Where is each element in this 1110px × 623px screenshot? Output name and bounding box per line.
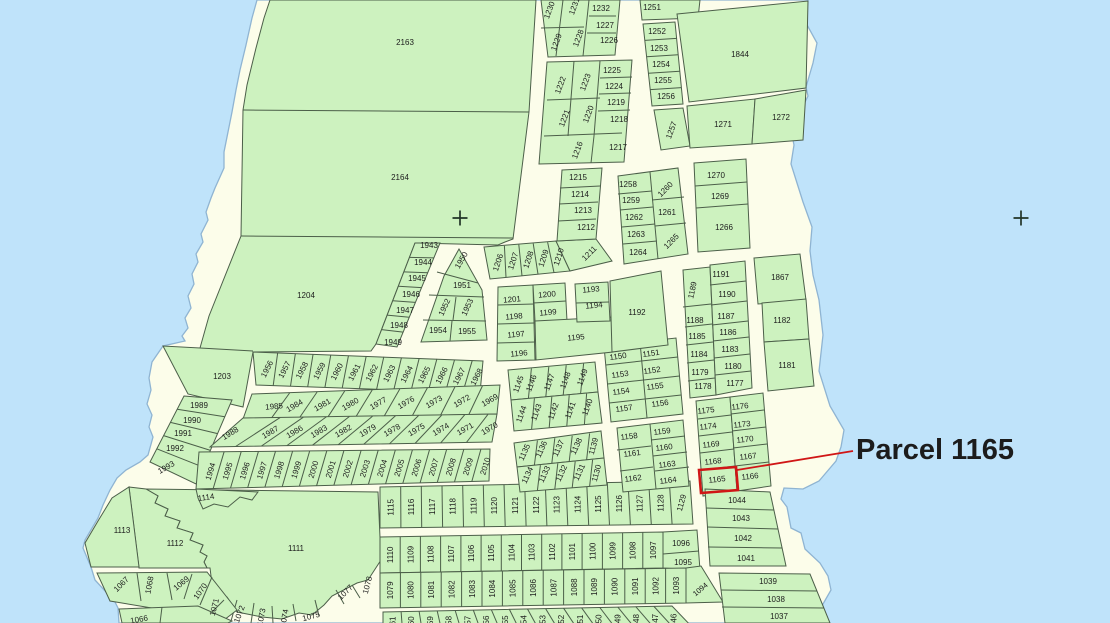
svg-text:1108: 1108 (427, 545, 436, 563)
svg-text:1256: 1256 (657, 92, 675, 101)
svg-text:1051: 1051 (576, 614, 585, 623)
svg-text:1101: 1101 (568, 542, 577, 560)
svg-text:1091: 1091 (631, 577, 640, 595)
svg-text:1109: 1109 (406, 545, 415, 563)
svg-text:1990: 1990 (183, 416, 201, 425)
svg-text:1111: 1111 (288, 544, 305, 553)
svg-text:1124: 1124 (573, 495, 582, 513)
svg-text:1041: 1041 (737, 554, 755, 563)
svg-text:1038: 1038 (767, 595, 785, 604)
svg-text:1949: 1949 (384, 338, 402, 347)
svg-text:1089: 1089 (590, 578, 599, 596)
svg-text:1170: 1170 (736, 434, 755, 445)
svg-text:1262: 1262 (625, 213, 643, 222)
svg-text:2164: 2164 (391, 173, 409, 182)
svg-text:1951: 1951 (453, 281, 471, 290)
svg-text:1123: 1123 (553, 496, 562, 514)
svg-text:1196: 1196 (510, 348, 528, 359)
svg-text:1048: 1048 (632, 614, 641, 623)
svg-text:1270: 1270 (707, 171, 725, 180)
svg-text:1232: 1232 (592, 4, 610, 13)
svg-text:1099: 1099 (608, 541, 617, 559)
svg-text:1185: 1185 (688, 332, 706, 341)
svg-text:1178: 1178 (694, 382, 712, 391)
svg-text:1193: 1193 (582, 284, 600, 295)
svg-text:1259: 1259 (622, 196, 640, 205)
svg-text:1052: 1052 (557, 614, 566, 623)
svg-text:1165: 1165 (708, 474, 727, 485)
svg-text:1947: 1947 (396, 306, 414, 315)
svg-text:1095: 1095 (674, 558, 692, 567)
svg-text:1190: 1190 (718, 290, 736, 299)
svg-text:1266: 1266 (715, 223, 733, 232)
svg-text:1100: 1100 (588, 542, 597, 560)
svg-text:1056: 1056 (482, 615, 491, 623)
svg-text:1102: 1102 (548, 543, 557, 561)
svg-text:1049: 1049 (613, 614, 622, 623)
svg-text:1054: 1054 (520, 615, 529, 623)
svg-text:1090: 1090 (611, 577, 620, 595)
svg-text:1086: 1086 (529, 579, 538, 597)
svg-text:1191: 1191 (712, 270, 730, 279)
svg-text:1227: 1227 (596, 21, 614, 30)
svg-text:1173: 1173 (733, 419, 752, 430)
svg-text:1166: 1166 (741, 471, 760, 482)
svg-text:1188: 1188 (686, 316, 704, 325)
svg-text:1096: 1096 (672, 539, 690, 548)
svg-text:1103: 1103 (528, 543, 537, 561)
svg-text:1264: 1264 (629, 248, 647, 257)
svg-text:1254: 1254 (652, 60, 670, 69)
svg-text:1224: 1224 (605, 82, 623, 91)
svg-text:1271: 1271 (714, 120, 732, 129)
svg-text:1047: 1047 (651, 613, 660, 623)
svg-text:1125: 1125 (594, 495, 603, 513)
svg-text:1200: 1200 (538, 289, 557, 300)
svg-text:1182: 1182 (773, 316, 791, 325)
svg-text:1867: 1867 (771, 273, 789, 282)
svg-text:1175: 1175 (697, 405, 716, 416)
svg-text:1098: 1098 (629, 541, 638, 559)
svg-text:1057: 1057 (463, 615, 472, 623)
svg-text:1194: 1194 (585, 300, 603, 311)
svg-text:1113: 1113 (114, 526, 131, 535)
svg-text:1181: 1181 (778, 361, 796, 370)
svg-text:1272: 1272 (772, 113, 790, 122)
svg-text:1120: 1120 (490, 497, 499, 515)
svg-text:1180: 1180 (724, 362, 742, 371)
svg-text:1263: 1263 (627, 230, 645, 239)
svg-text:1060: 1060 (407, 616, 416, 623)
svg-text:1044: 1044 (728, 496, 746, 505)
svg-text:1092: 1092 (651, 577, 660, 595)
svg-text:1948: 1948 (390, 321, 408, 330)
svg-text:1217: 1217 (609, 143, 627, 152)
svg-text:1269: 1269 (711, 192, 729, 201)
svg-text:1204: 1204 (297, 291, 315, 300)
svg-text:1261: 1261 (658, 208, 676, 217)
svg-text:2163: 2163 (396, 38, 414, 47)
svg-text:1225: 1225 (603, 66, 621, 75)
svg-text:1989: 1989 (190, 401, 208, 410)
svg-text:1195: 1195 (567, 332, 585, 343)
svg-text:1081: 1081 (427, 580, 436, 598)
svg-text:1080: 1080 (407, 581, 416, 599)
svg-text:1214: 1214 (571, 190, 589, 199)
svg-text:1177: 1177 (726, 379, 744, 388)
svg-text:1226: 1226 (600, 36, 618, 45)
svg-text:1955: 1955 (458, 327, 476, 336)
svg-text:1083: 1083 (468, 580, 477, 598)
svg-text:1954: 1954 (429, 326, 447, 335)
svg-text:1258: 1258 (619, 180, 637, 189)
svg-text:1198: 1198 (505, 311, 523, 322)
svg-text:1213: 1213 (574, 206, 592, 215)
svg-text:1128: 1128 (656, 494, 665, 512)
svg-text:1088: 1088 (570, 578, 579, 596)
svg-text:1179: 1179 (691, 368, 709, 377)
svg-text:1112: 1112 (167, 539, 184, 548)
svg-text:1119: 1119 (469, 497, 478, 514)
svg-text:1168: 1168 (704, 456, 723, 467)
svg-text:1105: 1105 (487, 544, 496, 562)
svg-text:1118: 1118 (449, 497, 458, 514)
svg-text:1192: 1192 (628, 308, 646, 317)
svg-text:1253: 1253 (650, 44, 668, 53)
svg-text:1046: 1046 (670, 613, 679, 623)
svg-text:1058: 1058 (445, 615, 454, 623)
svg-text:1087: 1087 (549, 578, 558, 596)
svg-text:1174: 1174 (699, 421, 718, 432)
svg-text:1115: 1115 (386, 498, 395, 515)
svg-text:1053: 1053 (538, 614, 547, 623)
svg-text:1167: 1167 (739, 451, 758, 462)
svg-text:1943: 1943 (420, 241, 438, 250)
svg-text:1944: 1944 (414, 258, 432, 267)
svg-text:1985: 1985 (265, 401, 284, 412)
svg-text:1992: 1992 (166, 444, 184, 453)
svg-text:1061: 1061 (388, 616, 397, 623)
svg-text:1184: 1184 (690, 350, 708, 359)
svg-text:1122: 1122 (532, 496, 541, 514)
svg-text:Parcel 1165: Parcel 1165 (856, 434, 1014, 466)
svg-text:1116: 1116 (407, 498, 416, 515)
svg-text:1991: 1991 (174, 429, 192, 438)
svg-text:1082: 1082 (447, 580, 456, 598)
svg-text:1050: 1050 (595, 614, 604, 623)
svg-text:1199: 1199 (539, 307, 557, 318)
svg-text:1844: 1844 (731, 50, 749, 59)
svg-text:1043: 1043 (732, 514, 750, 523)
svg-text:1218: 1218 (610, 115, 628, 124)
svg-text:1203: 1203 (213, 372, 231, 381)
svg-text:1042: 1042 (734, 534, 752, 543)
svg-text:1183: 1183 (721, 345, 739, 354)
svg-text:1117: 1117 (428, 498, 437, 515)
svg-text:1039: 1039 (759, 577, 777, 586)
svg-text:1212: 1212 (577, 223, 595, 232)
svg-text:1097: 1097 (649, 541, 658, 559)
svg-text:1093: 1093 (672, 576, 681, 594)
svg-text:1176: 1176 (731, 401, 750, 412)
svg-text:1255: 1255 (654, 76, 672, 85)
svg-text:1055: 1055 (501, 615, 510, 623)
svg-text:1201: 1201 (503, 294, 522, 305)
svg-text:1110: 1110 (386, 546, 395, 563)
svg-text:1059: 1059 (426, 616, 435, 623)
svg-text:1106: 1106 (467, 544, 476, 562)
svg-text:1037: 1037 (770, 612, 788, 621)
svg-text:1126: 1126 (615, 495, 624, 513)
svg-text:1187: 1187 (717, 312, 735, 321)
svg-text:1169: 1169 (702, 439, 721, 450)
svg-text:1252: 1252 (648, 27, 666, 36)
svg-text:1219: 1219 (607, 98, 625, 107)
svg-text:1197: 1197 (507, 329, 525, 340)
svg-text:1085: 1085 (509, 579, 518, 597)
svg-text:1107: 1107 (447, 545, 456, 563)
svg-text:1945: 1945 (408, 274, 426, 283)
svg-text:1079: 1079 (386, 581, 395, 599)
svg-text:1251: 1251 (643, 3, 661, 12)
svg-text:1104: 1104 (507, 544, 516, 562)
svg-text:1084: 1084 (488, 579, 497, 597)
svg-text:1946: 1946 (402, 290, 420, 299)
svg-text:1186: 1186 (719, 328, 737, 337)
svg-text:1127: 1127 (636, 494, 645, 512)
svg-text:1121: 1121 (511, 496, 520, 514)
svg-text:1215: 1215 (569, 173, 587, 182)
